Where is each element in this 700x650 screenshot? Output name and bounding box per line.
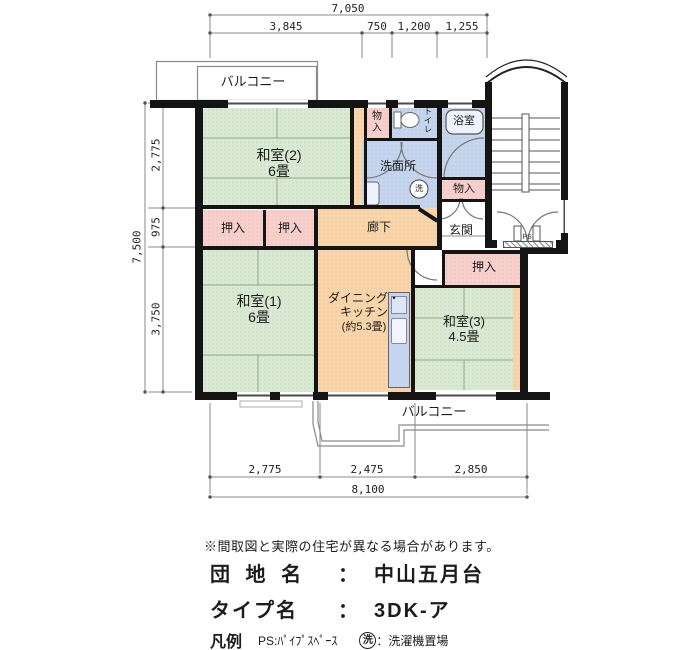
ps-label: PS bbox=[522, 234, 531, 242]
estate-value: 中山五月台 bbox=[374, 558, 484, 587]
wall-stair-south bbox=[520, 248, 568, 254]
dim-top-seg4: 1,255 bbox=[445, 20, 478, 33]
wall-int bbox=[314, 208, 318, 392]
oshiire1-label: 押入 bbox=[221, 222, 245, 236]
dim-top-total: 7,050 bbox=[331, 2, 364, 15]
window-stairwell bbox=[561, 200, 568, 233]
wall-int bbox=[442, 177, 486, 180]
washitsu3-label: 和室(3)4.5畳 bbox=[443, 315, 485, 345]
toilet-label: トイレ bbox=[424, 108, 435, 134]
legend-washer-text: ：洗濯機置場 bbox=[376, 632, 448, 649]
genkan-label: 玄関 bbox=[449, 224, 473, 238]
oshiire3-label: 押入 bbox=[472, 261, 496, 275]
rouka-label: 廊下 bbox=[367, 221, 391, 235]
dim-bottom-total: 8,100 bbox=[351, 483, 384, 496]
monoiri-top-label: 物入 bbox=[372, 111, 384, 134]
type-label: タイプ名 bbox=[210, 594, 328, 623]
dim-top-seg1: 3,845 bbox=[269, 20, 302, 33]
dim-left-total: 7,500 bbox=[131, 230, 144, 263]
wall-stair-left bbox=[485, 82, 492, 248]
oshiire2-label: 押入 bbox=[278, 222, 302, 236]
dim-top-seg3: 1,200 bbox=[397, 20, 430, 33]
dim-bottom-seg3: 2,850 bbox=[454, 463, 487, 476]
wall-int bbox=[203, 246, 440, 250]
wall-int bbox=[442, 199, 486, 202]
washitsu1-label: 和室(1)6畳 bbox=[236, 293, 281, 325]
window-washitsu2 bbox=[228, 100, 308, 108]
type-colon: ： bbox=[338, 594, 360, 623]
balcony-bottom-outline bbox=[240, 401, 549, 446]
dim-bottom-seg1: 2,775 bbox=[248, 463, 281, 476]
type-value: 3DK-ア bbox=[374, 594, 451, 623]
window-washitsu3 bbox=[436, 392, 496, 400]
washitsu2-label: 和室(2)6畳 bbox=[256, 147, 301, 179]
wall-int bbox=[364, 108, 367, 208]
estate-colon: ： bbox=[338, 558, 360, 587]
window-toilet bbox=[398, 100, 414, 108]
estate-label: 団 地 名 bbox=[210, 558, 328, 587]
wall-int bbox=[389, 108, 392, 140]
toilet-icon bbox=[394, 112, 419, 128]
monoiri-right-label: 物入 bbox=[453, 183, 475, 196]
wall-int bbox=[411, 250, 415, 392]
disclaimer-text: ※間取図と実際の住宅が異なる場合があります。 bbox=[204, 536, 500, 555]
dim-bottom-seg2: 2,475 bbox=[350, 463, 383, 476]
sink-icon bbox=[365, 182, 379, 205]
wall-stair-doorjamb-l bbox=[485, 240, 497, 248]
estate-name-row: 団 地 名 ： 中山五月台 bbox=[210, 558, 484, 587]
window-dk bbox=[328, 392, 388, 400]
dim-left-seg3: 3,750 bbox=[150, 302, 163, 335]
dim-top-seg2: 750 bbox=[367, 20, 387, 33]
window-washitsu1-b bbox=[280, 392, 313, 400]
washer-label: 洗 bbox=[415, 184, 423, 193]
dim-left-seg2: 975 bbox=[150, 217, 163, 237]
legend-label: 凡例 bbox=[210, 628, 242, 650]
floor-plan: 和室(2)6畳 和室(1)6畳 和室(3)4.5畳 ダイニング・キッチン(約5.… bbox=[0, 0, 700, 650]
stairs-icon bbox=[486, 60, 567, 242]
wall-right bbox=[520, 248, 528, 400]
balcony-top-label: バルコニー bbox=[221, 75, 286, 90]
wall-stair-doorjamb-r bbox=[556, 240, 568, 248]
legend-washer-icon: 洗 bbox=[359, 632, 376, 649]
senmenjo-label: 洗面所 bbox=[380, 160, 416, 174]
window-senmenjo bbox=[368, 100, 386, 108]
wall-int bbox=[442, 250, 523, 254]
type-name-row: タイプ名 ： 3DK-ア bbox=[210, 594, 451, 623]
wall-int bbox=[415, 285, 523, 288]
yokushitsu-label: 浴室 bbox=[453, 115, 475, 128]
legend-ps-text: PS:ﾊﾟｲﾌﾟｽﾍﾟｰｽ bbox=[258, 632, 337, 649]
wall-int bbox=[442, 252, 445, 286]
wall-int bbox=[203, 205, 420, 209]
wall-int bbox=[263, 210, 266, 248]
wall-left bbox=[195, 100, 203, 400]
window-yokushitsu bbox=[448, 100, 472, 108]
dk-label: ダイニング・キッチン(約5.3畳) bbox=[328, 292, 400, 333]
ps-sill bbox=[503, 241, 553, 248]
window-washitsu1-a bbox=[237, 392, 270, 400]
dim-left-seg1: 2,775 bbox=[150, 138, 163, 171]
legend-row: 凡例 PS:ﾊﾟｲﾌﾟｽﾍﾟｰｽ 洗 ：洗濯機置場 bbox=[210, 628, 448, 650]
wall-stair-right bbox=[561, 82, 568, 200]
balcony-bottom-label: バルコニー bbox=[402, 405, 467, 420]
wall-int bbox=[364, 138, 437, 141]
wall-int bbox=[350, 108, 354, 208]
